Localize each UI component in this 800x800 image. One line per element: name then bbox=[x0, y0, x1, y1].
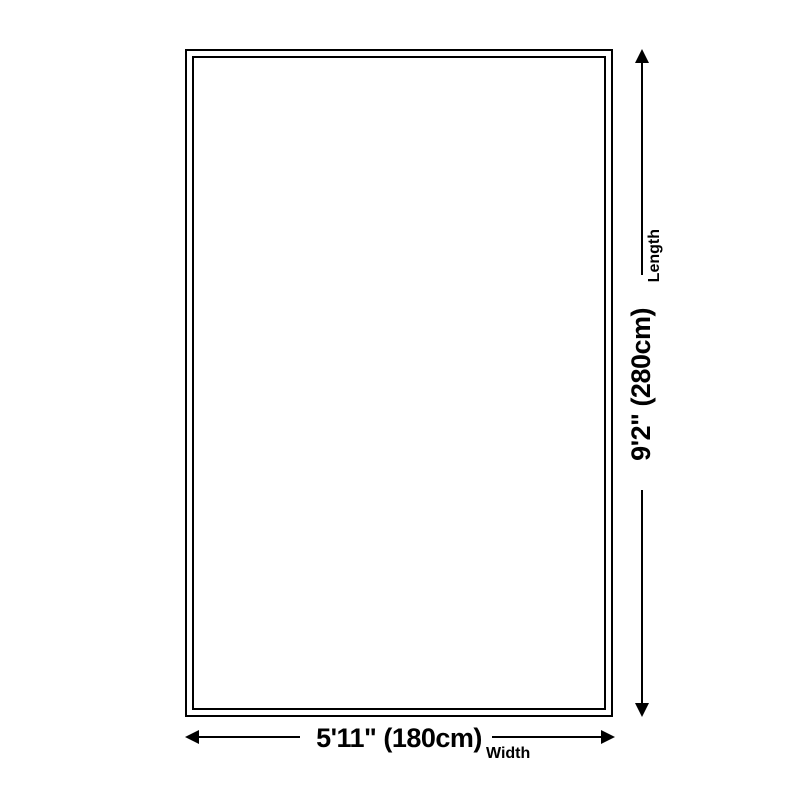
length-label-box: Length bbox=[645, 224, 665, 288]
size-diagram: 9'2" (280cm) Length 5'11" (180cm) Width bbox=[0, 0, 800, 800]
width-value: 5'11" (180cm) bbox=[316, 723, 482, 753]
width-dimension-line-right bbox=[492, 736, 602, 738]
length-dimension-line-top bbox=[641, 61, 643, 275]
arrow-right-icon bbox=[601, 730, 615, 744]
arrow-down-icon bbox=[635, 703, 649, 717]
length-value-box: 9'2" (280cm) bbox=[620, 308, 662, 460]
width-label: Width bbox=[486, 744, 530, 763]
width-dimension-line-left bbox=[197, 736, 300, 738]
length-value: 9'2" (280cm) bbox=[626, 308, 657, 461]
rug-outline-outer bbox=[185, 49, 613, 717]
length-dimension-line-bottom bbox=[641, 490, 643, 704]
length-label: Length bbox=[646, 229, 664, 282]
rug-outline-inner bbox=[192, 56, 606, 710]
